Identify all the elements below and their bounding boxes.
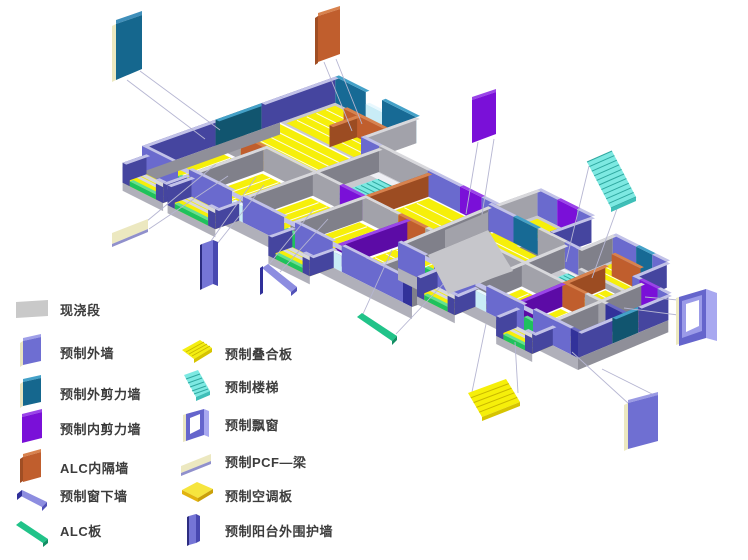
- legend-label: 现浇段: [60, 300, 101, 319]
- precast-bay-window-icon: [178, 405, 216, 443]
- legend-label: 预制外剪力墙: [60, 384, 141, 403]
- legend-item-precast-bay-window: 预制飘窗: [178, 405, 279, 443]
- legend-label: ALC内隔墙: [60, 458, 129, 477]
- precast-exterior-wall-icon: [13, 333, 51, 371]
- precast-balcony-enclosure-wall-icon: [178, 511, 216, 549]
- legend-label: 预制阳台外围护墙: [225, 521, 333, 540]
- legend-item-precast-exterior-shear-wall: 预制外剪力墙: [13, 374, 141, 412]
- legend-label: 预制楼梯: [225, 377, 279, 396]
- legend-label: 预制窗下墙: [60, 486, 128, 505]
- legend-item-precast-window-sill-wall: 预制窗下墙: [13, 476, 128, 514]
- legend-label: 预制空调板: [225, 486, 293, 505]
- legend-label: 预制叠合板: [225, 344, 293, 363]
- legend-label: ALC板: [60, 521, 102, 540]
- precast-interior-shear-wall-icon: [13, 409, 51, 447]
- legend-item-precast-balcony-enclosure-wall: 预制阳台外围护墙: [178, 511, 333, 549]
- legend-item-cast-in-place-segment: 现浇段: [13, 290, 101, 328]
- precast-pcf-beam-icon: [178, 442, 216, 480]
- page: 现浇段 预制外墙 预制外剪力墙 预制内剪力墙 ALC内隔墙: [0, 0, 748, 560]
- cast-in-place-segment-icon: [13, 290, 51, 328]
- legend-label: 预制内剪力墙: [60, 419, 141, 438]
- legend-label: 预制外墙: [60, 343, 114, 362]
- legend-item-precast-stair: 预制楼梯: [178, 367, 279, 405]
- precast-exterior-shear-wall-icon: [13, 374, 51, 412]
- precast-stair-icon: [178, 367, 216, 405]
- precast-window-sill-wall-icon: [13, 476, 51, 514]
- legend-label: 预制PCF—梁: [225, 452, 307, 471]
- building-model: [123, 75, 672, 370]
- legend-item-precast-interior-shear-wall: 预制内剪力墙: [13, 409, 141, 447]
- precast-ac-slab-icon: [178, 476, 216, 514]
- legend-item-alc-panel: ALC板: [13, 511, 102, 549]
- legend-item-precast-exterior-wall: 预制外墙: [13, 333, 114, 371]
- legend-item-precast-ac-slab: 预制空调板: [178, 476, 293, 514]
- legend-label: 预制飘窗: [225, 415, 279, 434]
- legend-item-precast-pcf-beam: 预制PCF—梁: [178, 442, 307, 480]
- alc-panel-icon: [13, 511, 51, 549]
